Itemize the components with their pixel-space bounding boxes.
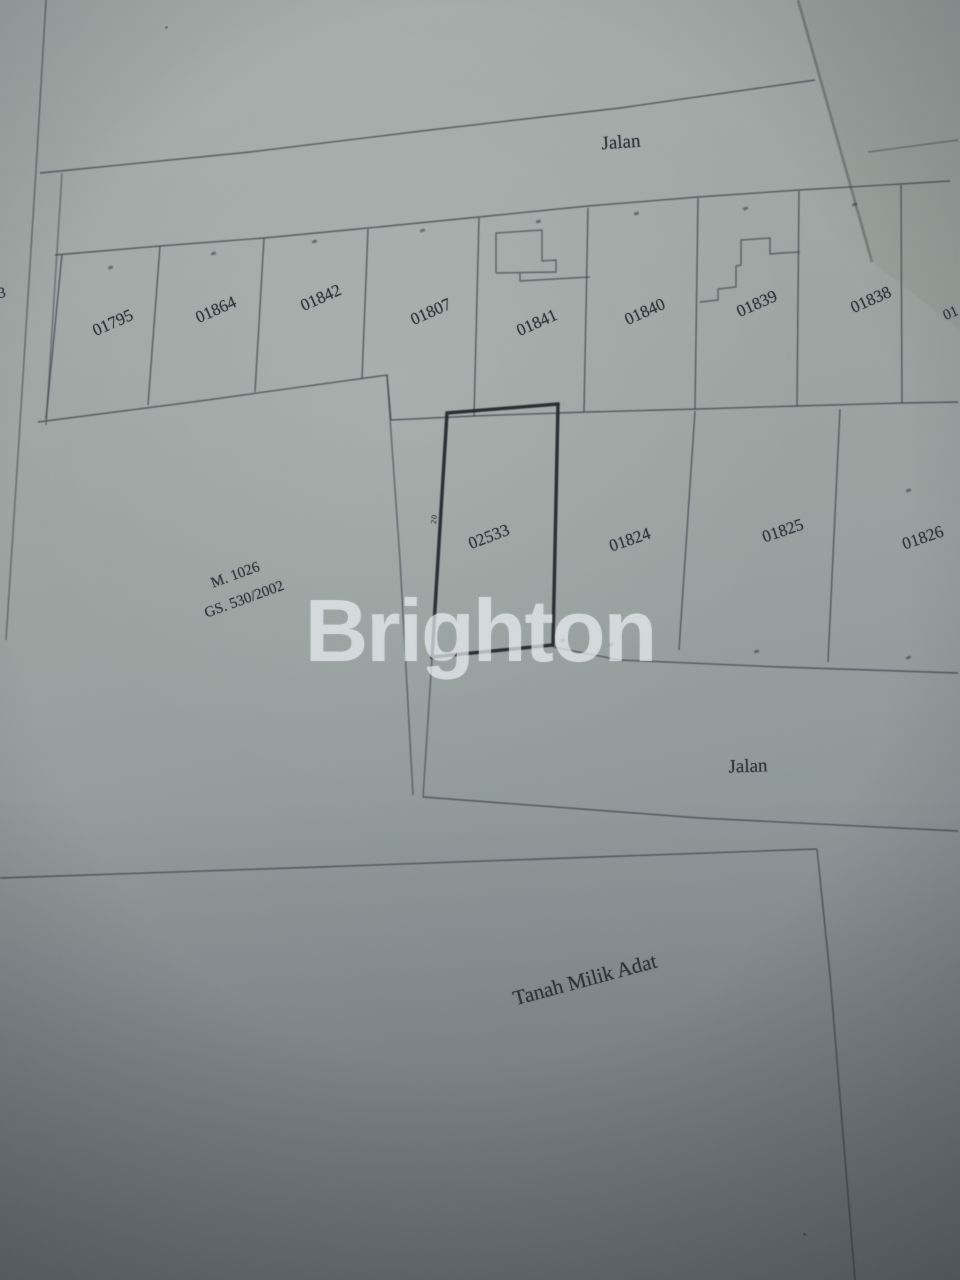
- photo-bottom-shadow: [0, 0, 960, 1280]
- photographed-site-plan: Jalan 01795 01864 01842 01807 01841 0184…: [0, 0, 960, 1280]
